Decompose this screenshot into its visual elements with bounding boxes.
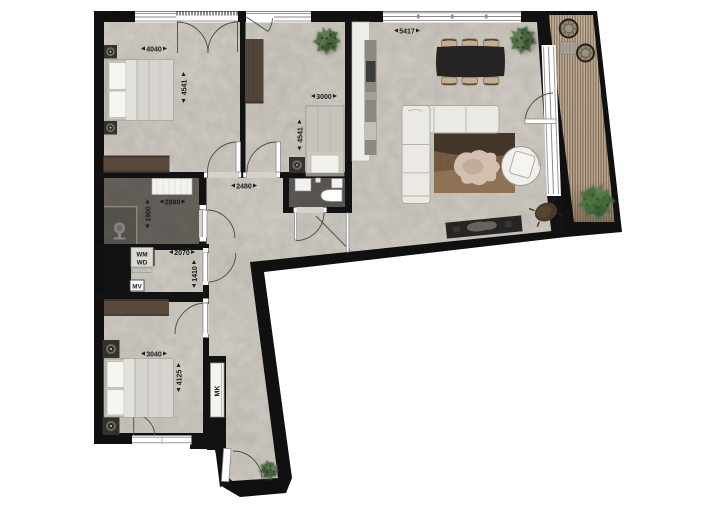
svg-text:MK: MK bbox=[215, 386, 222, 397]
svg-text:3000: 3000 bbox=[316, 94, 332, 101]
svg-text:4125: 4125 bbox=[177, 370, 184, 386]
svg-text:5417: 5417 bbox=[399, 29, 415, 36]
svg-text:4040: 4040 bbox=[146, 47, 162, 54]
svg-text:4541: 4541 bbox=[182, 80, 189, 96]
svg-text:WD: WD bbox=[137, 260, 148, 267]
svg-text:2890: 2890 bbox=[165, 200, 181, 207]
svg-text:1410: 1410 bbox=[192, 266, 199, 282]
svg-text:3040: 3040 bbox=[146, 352, 162, 359]
svg-text:2070: 2070 bbox=[174, 250, 190, 257]
svg-text:WM: WM bbox=[136, 252, 147, 259]
svg-text:2480: 2480 bbox=[236, 184, 252, 191]
svg-text:MV: MV bbox=[132, 284, 142, 291]
svg-text:4541: 4541 bbox=[298, 127, 305, 143]
svg-text:1900: 1900 bbox=[146, 206, 153, 222]
